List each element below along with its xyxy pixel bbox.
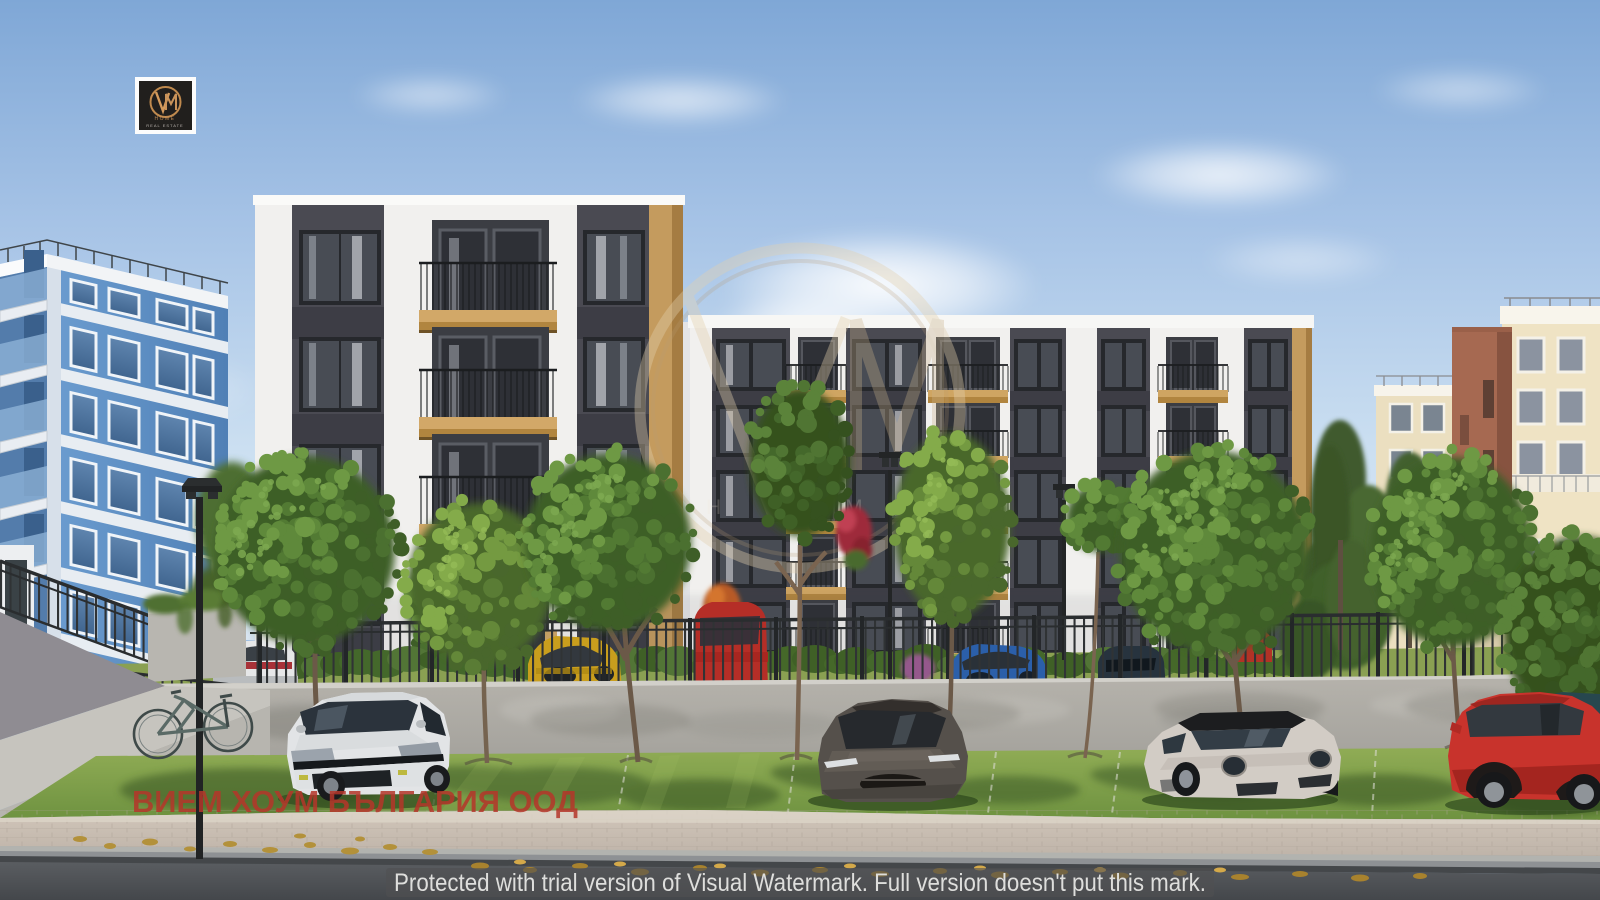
svg-text:REAL ESTATE: REAL ESTATE	[146, 123, 183, 128]
svg-text:ВИЕМ ХОУМ БЪЛГАРИЯ ООД: ВИЕМ ХОУМ БЪЛГАРИЯ ООД	[132, 784, 578, 819]
svg-text:HOME: HOME	[155, 116, 176, 122]
svg-text:Protected with trial version o: Protected with trial version of Visual W…	[394, 869, 1206, 897]
